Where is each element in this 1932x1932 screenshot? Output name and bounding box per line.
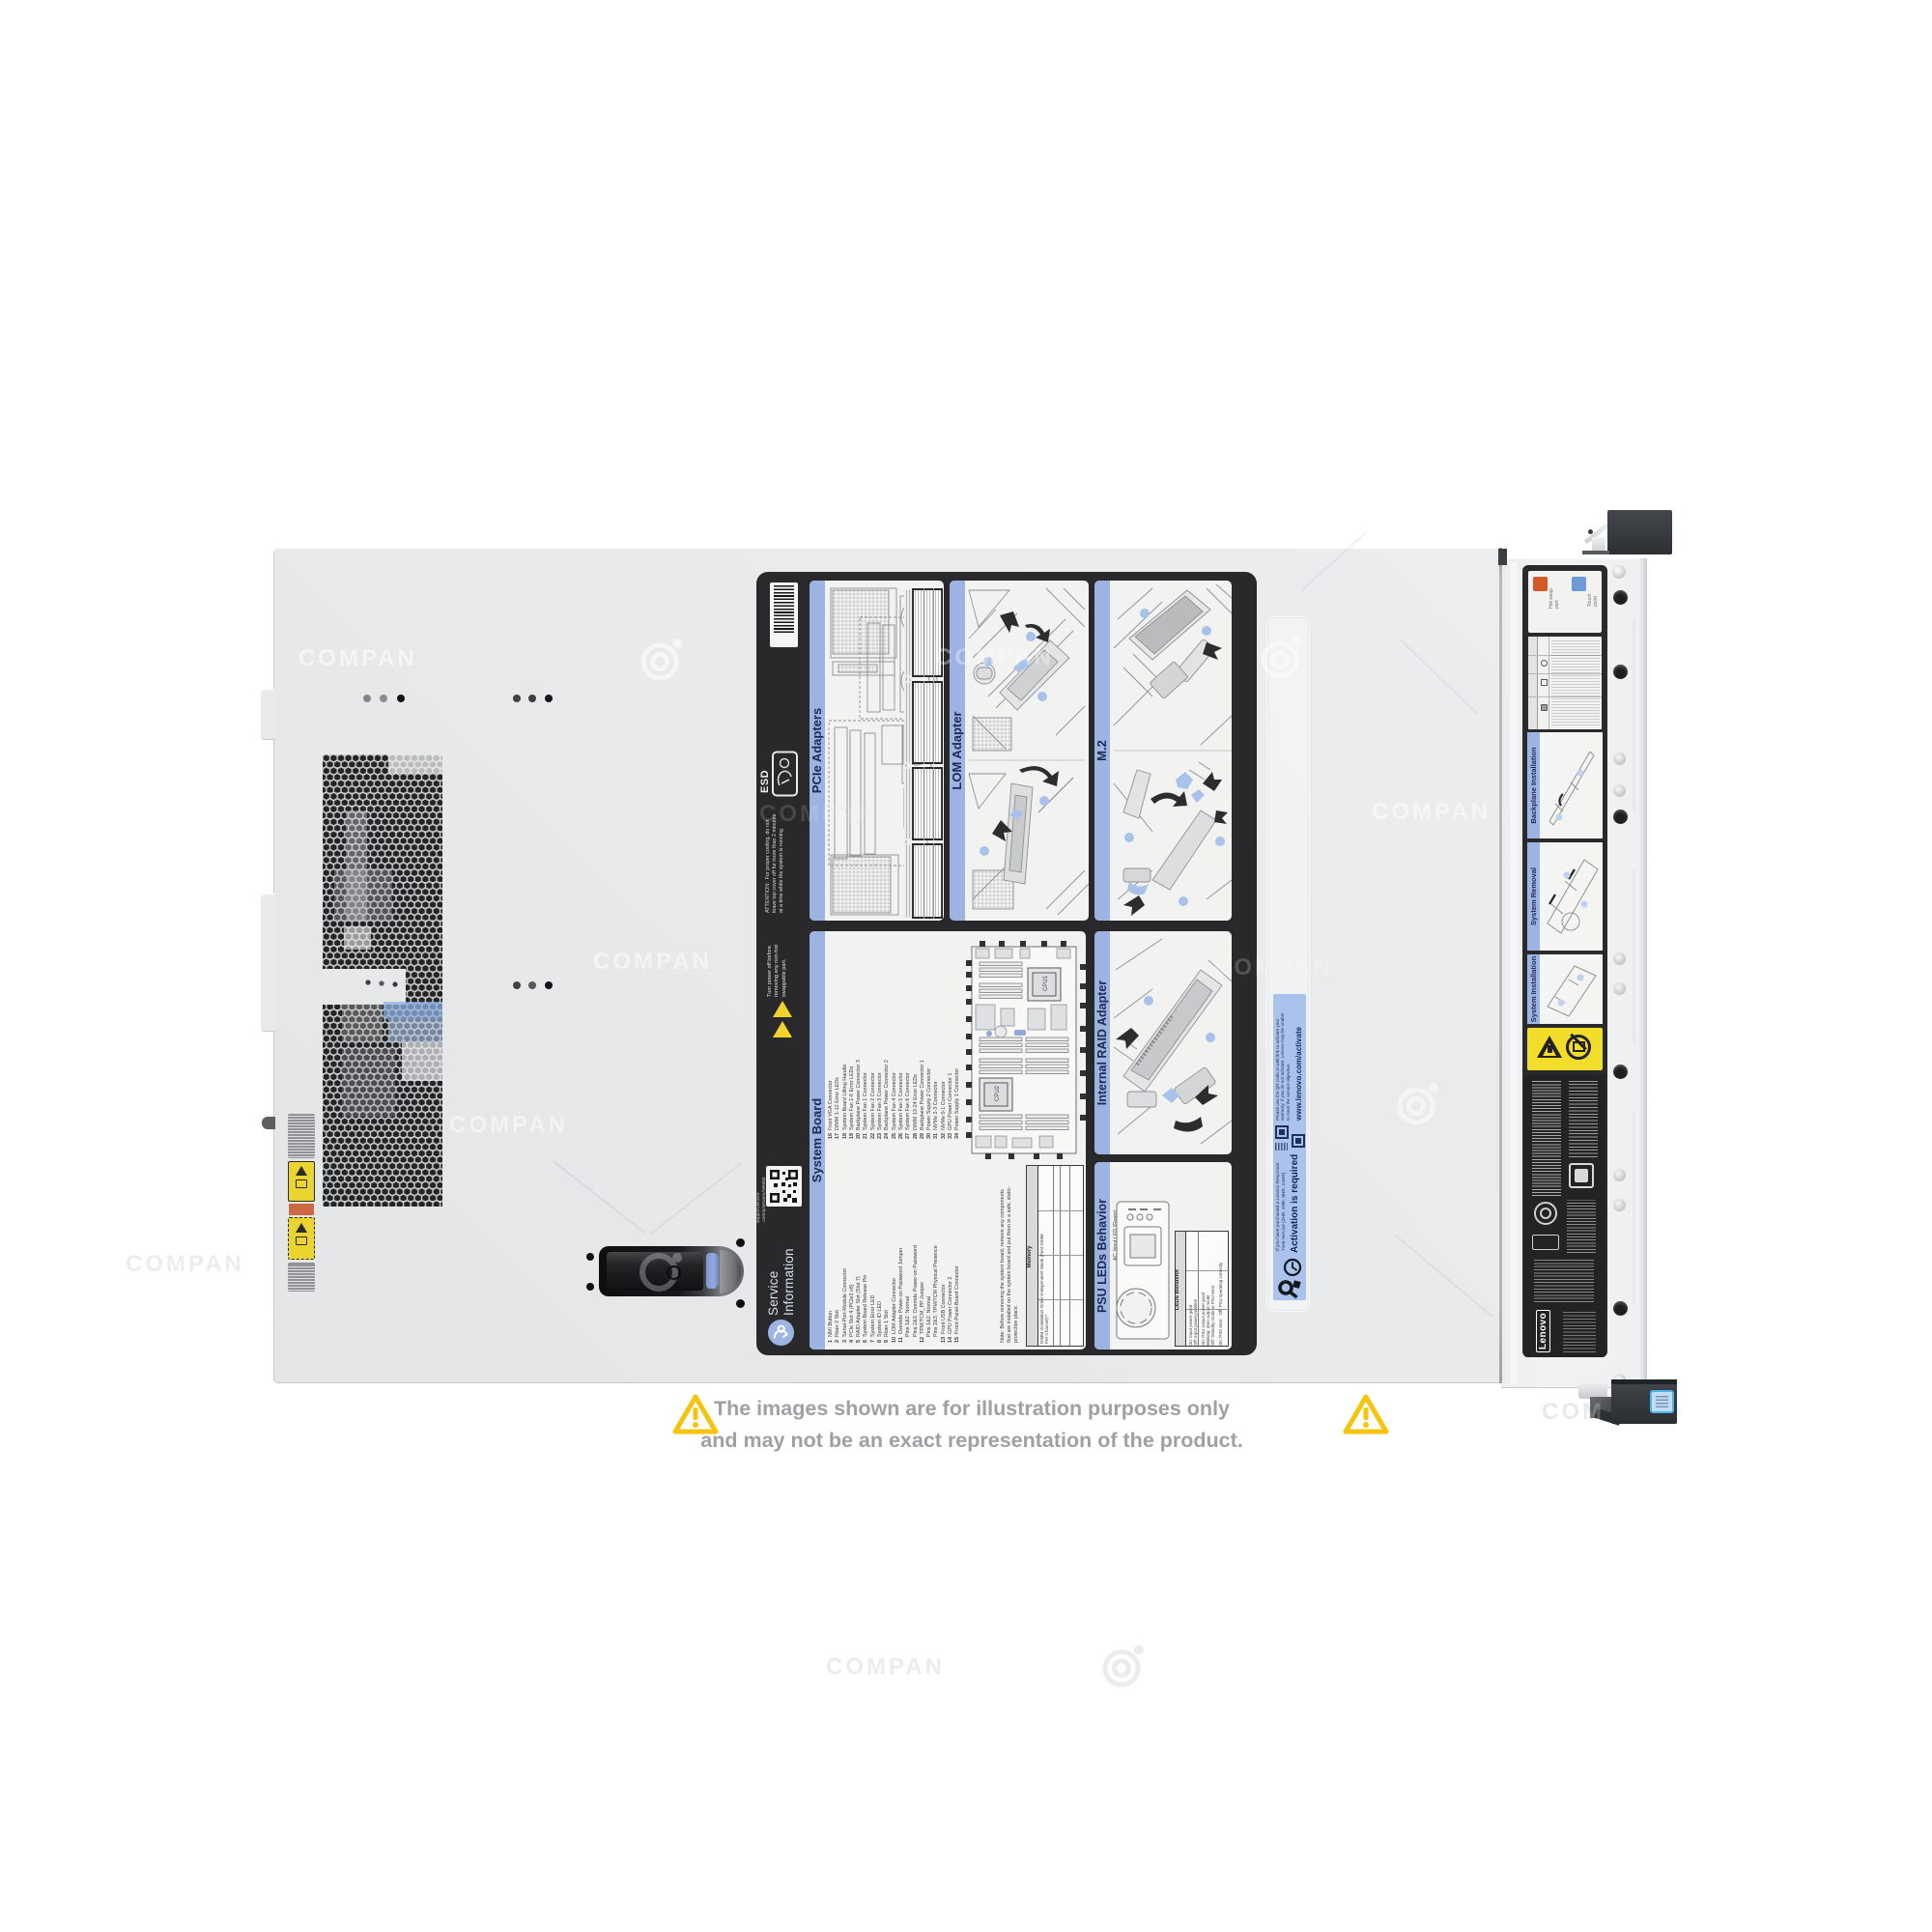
- svg-text:CPU2: CPU2: [995, 1085, 1001, 1101]
- svg-text:CPU1: CPU1: [1043, 975, 1049, 991]
